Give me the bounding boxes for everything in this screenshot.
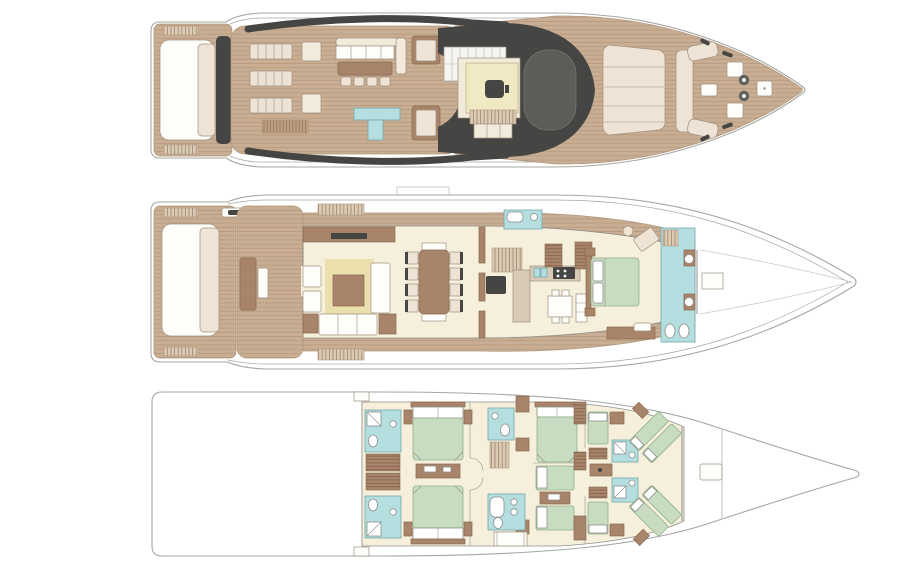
main-aft-stairs-stbd — [164, 347, 198, 356]
crew-berth-stbd — [588, 502, 608, 534]
crew-berth-port — [588, 412, 608, 444]
salon-fwd-wall — [479, 227, 485, 338]
crew-bath-lower — [612, 478, 638, 502]
coffee-table — [333, 275, 364, 306]
linen-locker-1 — [366, 454, 400, 471]
main-aft-stairs-port — [164, 208, 198, 217]
main-foredeck-hatch — [702, 273, 723, 289]
helm-seat-arm — [505, 85, 509, 93]
galley-cooktop — [553, 267, 575, 279]
sundeck-aft-stairs-stbd — [164, 145, 198, 154]
crew-locker-2 — [589, 487, 607, 498]
main-aft-sunpad-cushion — [200, 228, 219, 332]
chaise-lounger-1 — [412, 36, 440, 64]
master-bathroom — [661, 228, 695, 342]
flybridge-stairs — [470, 110, 516, 124]
deck-plan-page — [0, 0, 900, 564]
bath-bidet — [679, 324, 689, 338]
galley-counter-left — [513, 270, 530, 322]
port-ensuite-bath — [365, 410, 401, 452]
hardtop-hood — [524, 50, 576, 130]
salon-tv — [331, 233, 367, 239]
master-headboard — [586, 256, 591, 308]
sundeck-aft-sunpad-cushion — [198, 44, 215, 136]
bow-hatch-square — [757, 81, 772, 96]
stbd-ensuite-bath — [365, 496, 401, 538]
deck-main — [151, 187, 856, 369]
crew-cabinet-1 — [610, 412, 624, 424]
salon-sofa — [319, 314, 377, 335]
bath-wc — [665, 324, 675, 338]
bow-storage-hatch — [700, 464, 722, 480]
foredeck-hatch-1 — [727, 62, 743, 77]
linen-locker-2 — [366, 473, 400, 490]
lounge-chair-row-2 — [250, 71, 292, 86]
foredeck-sunpad — [603, 45, 665, 135]
chaise-lounger-2 — [412, 106, 440, 140]
dining-table — [419, 250, 449, 314]
boarding-stairs-port — [318, 204, 364, 215]
dumbwaiter — [486, 276, 506, 294]
bath-stairs — [663, 230, 678, 246]
side-table-2 — [302, 94, 321, 113]
teak-grating — [262, 120, 308, 133]
master-nightstand-2 — [585, 308, 595, 316]
vip-cabin-stbd-bed — [411, 486, 465, 544]
deck-lower — [152, 392, 859, 556]
guest-bath-upper — [488, 408, 514, 440]
master-double-bed — [591, 258, 639, 306]
foredeck-hatch-2 — [727, 103, 743, 118]
deck-sundeck — [151, 13, 805, 167]
side-box-stbd — [354, 547, 369, 556]
bow-table — [701, 84, 717, 96]
bath-sink-1 — [685, 255, 694, 264]
guest-bath-lower — [488, 494, 525, 530]
day-head — [504, 210, 542, 229]
crew-cabinet-2 — [610, 524, 624, 536]
vip-cabin-port-bed — [411, 402, 465, 460]
bar-table — [338, 62, 392, 75]
master-nightstand-1 — [585, 248, 595, 256]
bath-sink-2 — [685, 298, 694, 307]
salon-cabinet-2 — [379, 314, 396, 334]
salon-armchair-1 — [303, 266, 321, 287]
main-staircase — [492, 248, 522, 272]
salon-cabinet-1 — [303, 314, 318, 333]
galley-closet — [545, 244, 562, 267]
crew-mess-counter — [590, 464, 612, 476]
helm-seat — [485, 80, 504, 98]
salon-chaise — [371, 263, 390, 313]
sundeck-aft-stairs-port — [164, 26, 198, 35]
lower-staircase — [490, 442, 509, 468]
flybridge-steps-lower — [474, 124, 512, 138]
vanity-table — [494, 532, 527, 546]
lounge-chair-row-3 — [250, 98, 292, 113]
guest-twin-cabin — [536, 466, 574, 530]
yacht-deck-plans — [0, 0, 900, 564]
salon-armchair-2 — [303, 291, 321, 312]
sundeck-stairwell-shadow — [216, 36, 231, 144]
guest-double-cabin — [535, 402, 579, 462]
crew-locker-1 — [589, 448, 607, 459]
lounge-chair-row-1 — [250, 44, 292, 59]
boarding-stairs-stbd — [318, 349, 364, 360]
side-table-1 — [302, 42, 321, 61]
central-dresser — [416, 464, 460, 478]
side-box-port — [354, 392, 369, 401]
